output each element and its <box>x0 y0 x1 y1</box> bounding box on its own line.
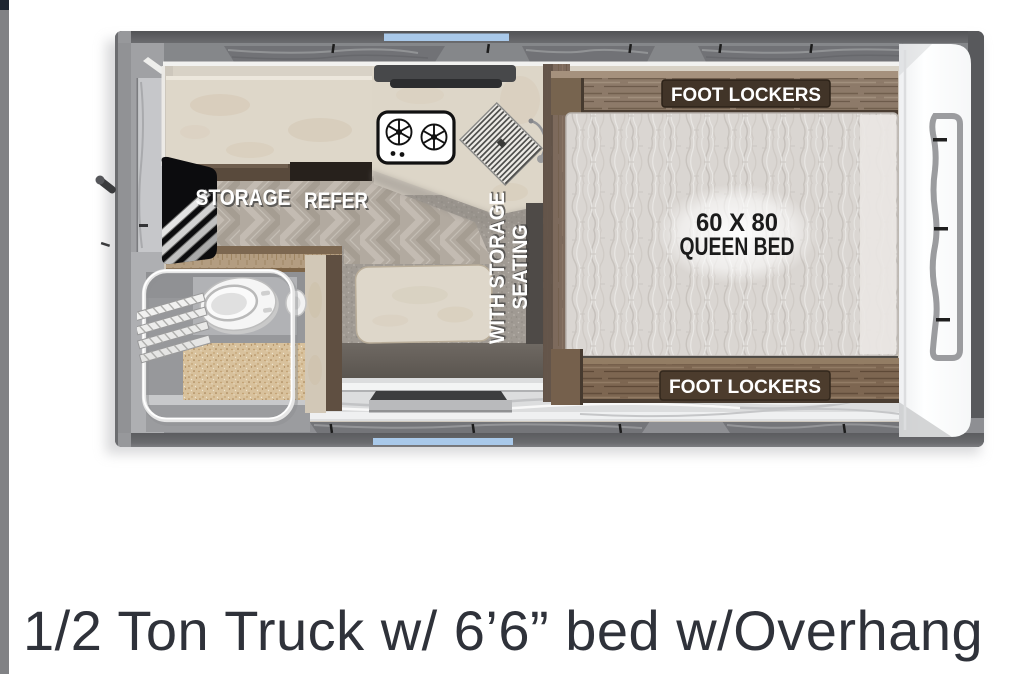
svg-text:SEATING: SEATING <box>509 225 532 310</box>
svg-text:REFER: REFER <box>304 188 368 213</box>
svg-text:FOOT LOCKERS: FOOT LOCKERS <box>671 85 821 106</box>
svg-text:FOOT LOCKERS: FOOT LOCKERS <box>669 376 821 398</box>
svg-text:QUEEN BED: QUEEN BED <box>680 233 795 261</box>
svg-text:STORAGE: STORAGE <box>196 185 291 210</box>
svg-text:WITH STORAGE: WITH STORAGE <box>486 192 509 344</box>
